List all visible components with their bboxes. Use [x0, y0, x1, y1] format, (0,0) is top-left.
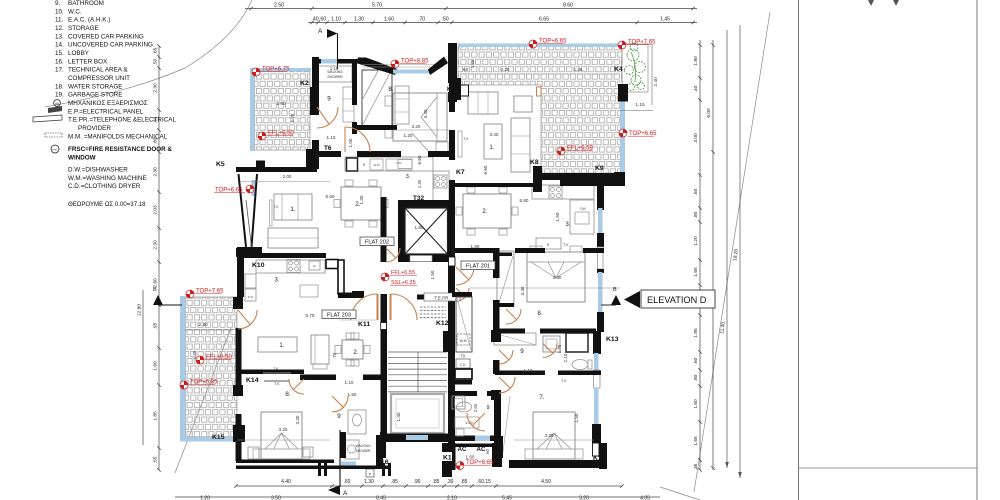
svg-text:.60.15: .60.15: [477, 479, 491, 485]
svg-text:.60: .60: [693, 188, 699, 195]
svg-text:1.10: 1.10: [327, 135, 336, 140]
svg-text:T.V.: T.V.: [274, 382, 280, 386]
svg-text:FLAT 201: FLAT 201: [466, 264, 490, 270]
svg-text:1.: 1.: [290, 206, 295, 213]
svg-text:T.V.: T.V.: [273, 367, 279, 371]
svg-text:3.40: 3.40: [490, 132, 499, 137]
svg-text:T.V.: T.V.: [463, 137, 469, 141]
svg-text:ΜΗΧΑΝΙΚΟΣ ΕΞΑΕΡΙΣΜΟΣ: ΜΗΧΑΝΙΚΟΣ ΕΞΑΕΡΙΣΜΟΣ: [68, 100, 148, 107]
svg-text:1.80: 1.80: [471, 244, 480, 249]
svg-text:.85: .85: [433, 479, 440, 485]
svg-text:.70: .70: [459, 354, 465, 359]
svg-text:WALKING: WALKING: [355, 444, 371, 448]
svg-text:D.W: D.W: [248, 295, 254, 299]
svg-text:AC: AC: [458, 446, 467, 453]
svg-text:1.20: 1.20: [404, 133, 413, 138]
svg-text:WATER STORAGE: WATER STORAGE: [68, 83, 122, 90]
svg-text:K3: K3: [447, 86, 455, 93]
svg-text:1.10: 1.10: [524, 368, 533, 373]
svg-text:3.20: 3.20: [412, 124, 421, 129]
svg-text:3.30: 3.30: [423, 109, 428, 118]
svg-text:5.70: 5.70: [306, 313, 315, 318]
svg-text:2.10: 2.10: [563, 353, 568, 362]
svg-text:ΘΕΩΡΟΥΜΕ ΩΣ 0.00=37.18: ΘΕΩΡΟΥΜΕ ΩΣ 0.00=37.18: [68, 201, 146, 208]
svg-text:W.M.: W.M.: [460, 339, 468, 343]
svg-text:.80: .80: [693, 374, 699, 381]
svg-text:E.A.C. (A.H.K.): E.A.C. (A.H.K.): [68, 17, 110, 24]
svg-text:1.50: 1.50: [430, 270, 435, 279]
svg-text:D.W.=DISHWASHER: D.W.=DISHWASHER: [68, 167, 128, 174]
svg-text:LETTER BOX: LETTER BOX: [68, 58, 108, 65]
svg-text:K9: K9: [595, 165, 604, 172]
svg-text:T.E.PR.=TELEPHONE &ELECTRICAL: T.E.PR.=TELEPHONE &ELECTRICAL: [68, 117, 176, 124]
svg-text:FLAT 202: FLAT 202: [365, 240, 389, 246]
svg-text:8.: 8.: [388, 86, 393, 93]
svg-text:COVERED CAR PARKING: COVERED CAR PARKING: [68, 33, 144, 40]
svg-text:10.: 10.: [55, 8, 64, 15]
svg-text:A: A: [343, 490, 348, 497]
svg-text:1.80: 1.80: [693, 56, 699, 66]
svg-text:A: A: [318, 28, 323, 35]
svg-text:.60: .60: [344, 479, 351, 485]
svg-text:1.30: 1.30: [354, 17, 364, 23]
svg-text:FRSC: FRSC: [52, 150, 58, 152]
svg-text:.60: .60: [319, 17, 326, 23]
svg-text:.60: .60: [485, 448, 490, 454]
svg-text:.70: .70: [418, 17, 425, 23]
svg-text:WINDOW: WINDOW: [68, 154, 96, 161]
svg-text:K8: K8: [530, 159, 539, 166]
svg-text:8.60: 8.60: [563, 3, 573, 9]
svg-text:DW: DW: [397, 161, 402, 165]
svg-text:FRSC=FIRE RESISTANCE DOOR &: FRSC=FIRE RESISTANCE DOOR &: [68, 146, 172, 153]
svg-text:6.65: 6.65: [539, 17, 549, 23]
svg-text:1.30: 1.30: [417, 179, 422, 188]
svg-text:UNCOVERED CAR PARKING: UNCOVERED CAR PARKING: [68, 42, 153, 49]
svg-text:.40: .40: [311, 17, 318, 23]
svg-text:W.M: W.M: [373, 163, 380, 167]
svg-text:12.: 12.: [55, 25, 64, 32]
svg-text:2.: 2.: [353, 349, 358, 356]
svg-text:2.30: 2.30: [153, 167, 159, 177]
svg-text:2.00: 2.00: [283, 174, 292, 179]
svg-text:3.: 3.: [406, 174, 411, 180]
svg-text:1.85: 1.85: [470, 59, 475, 68]
svg-text:.60: .60: [462, 67, 469, 72]
svg-text:5.80: 5.80: [520, 198, 529, 203]
svg-text:1.40: 1.40: [396, 412, 401, 421]
svg-text:.30: .30: [447, 479, 454, 485]
svg-text:K2: K2: [300, 80, 309, 87]
svg-text:1.95: 1.95: [693, 328, 699, 338]
svg-text:DW: DW: [580, 207, 585, 211]
svg-text:19.: 19.: [55, 92, 64, 99]
svg-text:1.15: 1.15: [635, 102, 645, 108]
svg-text:1.60: 1.60: [153, 361, 159, 371]
svg-text:3.: 3.: [274, 277, 279, 284]
svg-text:1.: 1.: [279, 342, 284, 349]
svg-text:2.30: 2.30: [153, 240, 159, 250]
svg-text:1.60: 1.60: [384, 17, 394, 23]
svg-text:P: P: [369, 472, 372, 477]
svg-text:5.70: 5.70: [372, 3, 382, 9]
svg-text:.50: .50: [441, 17, 448, 23]
svg-text:E.P.=ELECTRICAL PANEL: E.P.=ELECTRICAL PANEL: [68, 108, 144, 115]
svg-text:9: 9: [327, 96, 331, 103]
svg-text:K15: K15: [212, 434, 225, 441]
svg-text:2.10: 2.10: [447, 496, 457, 500]
svg-text:.60: .60: [153, 116, 159, 123]
svg-text:.60: .60: [693, 357, 699, 364]
svg-text:BATHROOM: BATHROOM: [68, 0, 104, 7]
svg-text:3.20: 3.20: [279, 427, 288, 432]
svg-text:2.: 2.: [482, 208, 487, 215]
svg-text:K13: K13: [606, 336, 619, 343]
svg-text:1.: 1.: [489, 144, 494, 151]
svg-text:M: M: [55, 101, 58, 106]
svg-text:16.: 16.: [55, 58, 64, 65]
svg-text:1.85: 1.85: [153, 411, 159, 421]
svg-text:.85: .85: [461, 479, 468, 485]
svg-text:B: B: [613, 287, 617, 293]
svg-text:9.: 9.: [55, 0, 61, 7]
svg-text:.80: .80: [153, 137, 159, 144]
svg-text:1.45: 1.45: [660, 17, 670, 23]
svg-text:.90: .90: [414, 479, 421, 485]
svg-text:3.30: 3.30: [520, 286, 525, 295]
svg-text:6.60: 6.60: [483, 165, 488, 174]
svg-text:12.80: 12.80: [137, 304, 143, 316]
svg-text:1.60: 1.60: [466, 455, 475, 460]
svg-text:R: R: [547, 243, 550, 247]
svg-text:K5: K5: [216, 161, 225, 168]
svg-text:COMPRESSOR UNIT: COMPRESSOR UNIT: [68, 75, 130, 82]
svg-text:14.: 14.: [55, 42, 64, 49]
svg-text:1.10: 1.10: [330, 66, 339, 71]
svg-text:SHOWER: SHOWER: [327, 75, 343, 79]
svg-text:K10: K10: [252, 262, 265, 269]
svg-text:.35: .35: [693, 463, 699, 470]
svg-text:1.50: 1.50: [574, 413, 579, 422]
svg-text:3.20: 3.20: [579, 496, 589, 500]
svg-text:1.20: 1.20: [693, 236, 699, 246]
svg-text:6.00: 6.00: [706, 108, 712, 118]
svg-text:W.C.: W.C.: [68, 8, 82, 15]
svg-text:T.E.PR.: T.E.PR.: [434, 296, 450, 301]
svg-text:T.V.: T.V.: [563, 243, 569, 247]
svg-text:8.: 8.: [285, 391, 290, 398]
svg-text:9: 9: [520, 348, 524, 355]
svg-text:6.60: 6.60: [417, 155, 422, 164]
svg-text:9: 9: [337, 413, 341, 420]
svg-text:T32: T32: [413, 195, 424, 202]
svg-text:R: R: [313, 265, 316, 269]
svg-text:T.V.: T.V.: [561, 379, 567, 383]
svg-text:LOBBY: LOBBY: [68, 50, 90, 57]
svg-text:K18: K18: [593, 455, 606, 462]
svg-text:K4: K4: [614, 66, 623, 73]
svg-text:1.10: 1.10: [331, 17, 341, 23]
svg-text:2.20: 2.20: [501, 67, 510, 72]
svg-text:1.60: 1.60: [693, 399, 699, 409]
svg-text:7.: 7.: [539, 394, 544, 401]
svg-text:3.50: 3.50: [271, 496, 281, 500]
svg-text:2.40: 2.40: [653, 77, 659, 87]
svg-text:W.M.=WASHING MACHINE: W.M.=WASHING MACHINE: [68, 175, 147, 182]
svg-text:K16: K16: [376, 459, 389, 466]
svg-text:2.60: 2.60: [473, 403, 478, 412]
svg-text:.70: .70: [332, 352, 337, 359]
svg-text:9: 9: [486, 405, 489, 411]
svg-text:3.30: 3.30: [553, 275, 562, 280]
svg-text:K11: K11: [358, 321, 370, 328]
svg-text:FLAT 203: FLAT 203: [327, 313, 351, 319]
svg-text:2.40: 2.40: [198, 322, 208, 328]
svg-text:.55: .55: [153, 456, 159, 463]
svg-text:1.50: 1.50: [348, 392, 357, 397]
svg-text:T.V.: T.V.: [273, 205, 279, 209]
svg-text:TECHNICAL AREA &: TECHNICAL AREA &: [68, 67, 128, 74]
svg-text:5.45: 5.45: [502, 496, 512, 500]
svg-text:C.D.=CLOTHING DRYER: C.D.=CLOTHING DRYER: [68, 183, 141, 190]
svg-text:3.30: 3.30: [545, 433, 554, 438]
svg-text:.50: .50: [153, 58, 159, 65]
svg-text:PROVIDER: PROVIDER: [78, 125, 111, 132]
svg-text:2.50: 2.50: [274, 3, 284, 9]
svg-text:T6: T6: [324, 145, 332, 152]
svg-text:.85: .85: [391, 479, 398, 485]
svg-text:4.50: 4.50: [541, 479, 551, 485]
svg-text:8.45: 8.45: [376, 496, 386, 500]
svg-text:18.: 18.: [55, 83, 64, 90]
svg-text:2.30: 2.30: [153, 83, 159, 93]
svg-text:17.: 17.: [55, 67, 64, 74]
svg-text:ELEVATION D: ELEVATION D: [647, 295, 707, 305]
svg-text:4.05: 4.05: [640, 496, 650, 500]
svg-text:K17: K17: [443, 455, 456, 462]
svg-text:3.00: 3.00: [693, 133, 699, 143]
svg-text:K14: K14: [246, 377, 259, 384]
svg-text:1.50: 1.50: [555, 212, 560, 221]
svg-text:SHOWER: SHOWER: [356, 449, 371, 453]
svg-text:15.: 15.: [55, 50, 64, 57]
svg-text:1.20: 1.20: [200, 496, 210, 500]
svg-text:STORAGE: STORAGE: [68, 25, 99, 32]
svg-text:11.: 11.: [55, 17, 64, 24]
svg-text:K12: K12: [436, 320, 449, 327]
svg-text:.80: .80: [693, 211, 699, 218]
svg-text:1.30: 1.30: [364, 479, 374, 485]
svg-text:1.65: 1.65: [693, 436, 699, 446]
svg-text:4.40: 4.40: [281, 479, 291, 485]
svg-text:.95: .95: [153, 322, 159, 329]
svg-text:1.10: 1.10: [345, 380, 354, 385]
svg-text:1.26: 1.26: [574, 67, 583, 72]
svg-text:K7: K7: [456, 169, 465, 176]
svg-text:R: R: [363, 163, 366, 167]
svg-text:5.60: 5.60: [326, 194, 335, 199]
svg-text:13.: 13.: [55, 33, 64, 40]
svg-text:2.50: 2.50: [276, 101, 286, 107]
svg-text:1.75: 1.75: [290, 113, 295, 122]
svg-text:.40: .40: [693, 85, 699, 92]
svg-text:C.D.: C.D.: [460, 363, 467, 367]
svg-text:3.30: 3.30: [295, 415, 300, 424]
svg-text:1.30: 1.30: [359, 195, 364, 204]
svg-text:B: B: [153, 287, 157, 293]
svg-text:1.65: 1.65: [693, 267, 699, 277]
svg-text:1.75: 1.75: [557, 344, 562, 353]
svg-text:GARBAGE STORE: GARBAGE STORE: [68, 92, 122, 99]
svg-text:3.: 3.: [565, 221, 570, 228]
svg-text:.65: .65: [153, 47, 159, 54]
svg-text:2.03: 2.03: [153, 205, 159, 215]
svg-text:8.: 8.: [537, 310, 542, 317]
svg-text:1.80: 1.80: [415, 225, 424, 230]
svg-text:1.00: 1.00: [348, 138, 353, 147]
